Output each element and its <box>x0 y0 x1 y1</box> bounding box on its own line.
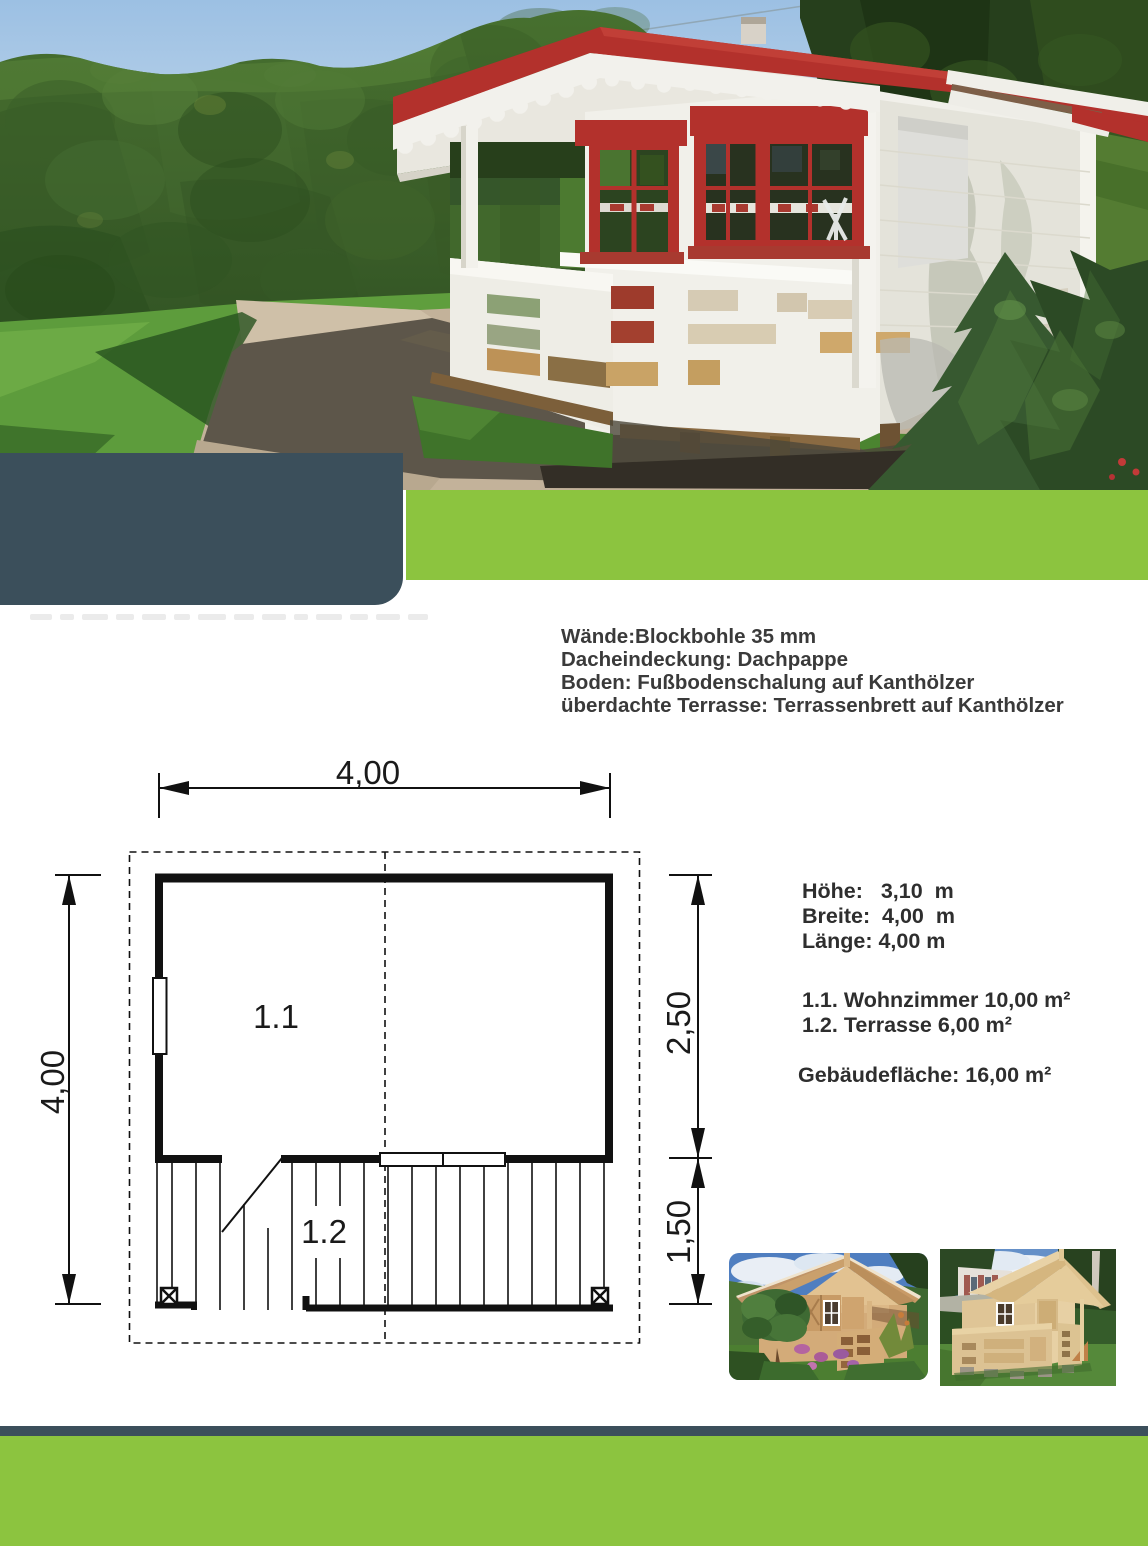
svg-text:4,00: 4,00 <box>34 1050 71 1114</box>
svg-text:1,50: 1,50 <box>660 1200 697 1264</box>
svg-text:1.2: 1.2 <box>301 1213 347 1250</box>
svg-text:2,50: 2,50 <box>660 991 697 1055</box>
svg-text:1.1: 1.1 <box>253 998 299 1035</box>
svg-text:4,00: 4,00 <box>336 754 400 791</box>
